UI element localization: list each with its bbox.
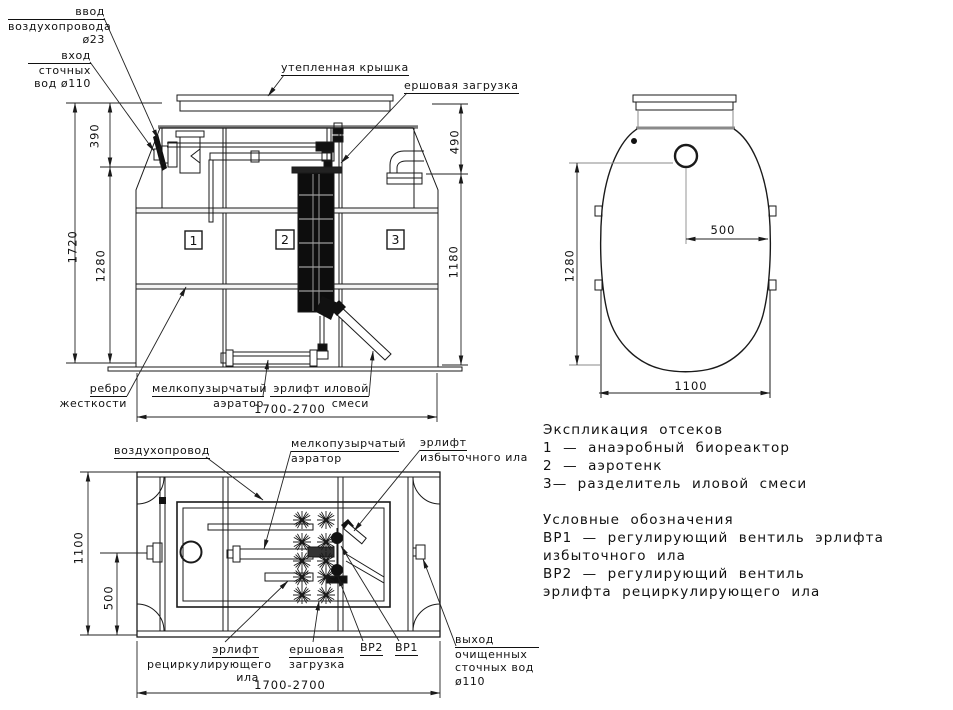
dim-1280-front: 1280 xyxy=(94,244,108,288)
callout-outlet: выход очищенных сточных вод ø110 xyxy=(455,633,539,688)
callout-sewage-inlet: вход сточных вод ø110 xyxy=(28,49,91,91)
dim-1100-plan: 1100 xyxy=(72,526,86,570)
compartment-number-3: 3 xyxy=(387,230,404,249)
legend-text-block: Экспликация отсеков 1 — анаэробный биоре… xyxy=(543,421,884,601)
side-view-linework xyxy=(595,95,776,398)
legend-symbols-title: Условные обозначения xyxy=(543,511,884,529)
legend-symbol-item: ВР2 — регулирующий вентиль xyxy=(543,565,884,583)
plan-view-linework xyxy=(137,472,440,637)
legend-compartment-item: 1 — анаэробный биореактор xyxy=(543,439,884,457)
callout-stiffening-rib: ребро жесткости xyxy=(59,382,127,410)
legend-symbol-item: эрлифта рециркулирующего ила xyxy=(543,583,884,601)
dim-1280-side: 1280 xyxy=(563,244,577,288)
legend-compartments-title: Экспликация отсеков xyxy=(543,421,884,439)
leader-lines xyxy=(90,18,456,646)
callout-brush-media-front: ершовая загрузка xyxy=(404,79,519,94)
dim-1720: 1720 xyxy=(66,225,80,269)
dim-500-side: 500 xyxy=(701,224,745,238)
dim-length-front: 1700-2700 xyxy=(245,403,335,417)
legend-spacer xyxy=(543,493,884,511)
dim-390: 390 xyxy=(88,114,102,158)
compartment-number-2: 2 xyxy=(276,230,294,249)
legend-symbol-item: избыточного ила xyxy=(543,547,884,565)
dim-length-plan: 1700-2700 xyxy=(245,679,335,693)
callout-insulated-cover: утепленная крышка xyxy=(281,61,409,76)
dim-1100-side: 1100 xyxy=(669,380,713,394)
technical-drawing: ввод воздухопровода ø23 вход сточных вод… xyxy=(0,0,953,710)
legend-compartment-item: 3— разделитель иловой смеси xyxy=(543,475,884,493)
callout-excess-airlift: эрлифт избыточного ила xyxy=(420,436,528,464)
callout-air-inlet: ввод воздухопровода ø23 xyxy=(8,5,105,47)
dim-500-plan: 500 xyxy=(102,576,116,620)
legend-symbol-item: ВР1 — регулирующий вентиль эрлифта xyxy=(543,529,884,547)
callout-recirc-airlift: эрлифт рециркулирующего ила xyxy=(147,643,259,685)
dim-1180: 1180 xyxy=(447,240,461,284)
legend-compartment-item: 2 — аэротенк xyxy=(543,457,884,475)
callout-air-line-plan: воздухопровод xyxy=(114,444,210,459)
callout-aerator-plan: мелкопузырчатый аэратор xyxy=(291,437,399,465)
compartment-number-1: 1 xyxy=(185,231,202,249)
callout-brush-media-plan: ершовая загрузка xyxy=(289,643,344,671)
dim-490: 490 xyxy=(448,120,462,164)
drawing-linework xyxy=(0,0,953,710)
callout-valve-vr1: ВР1 xyxy=(395,641,418,656)
callout-valve-vr2: ВР2 xyxy=(360,641,383,656)
